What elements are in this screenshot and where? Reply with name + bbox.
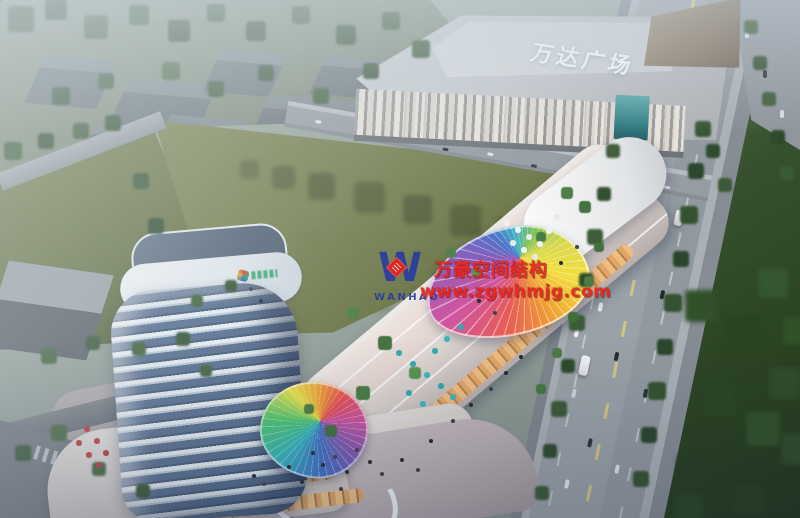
- tower-logo: [237, 267, 278, 281]
- tower-logo-icon: [236, 269, 249, 282]
- mall-building: [341, 0, 749, 178]
- warehouse-building: [0, 261, 114, 361]
- street-cars: [287, 107, 293, 111]
- aerial-rendering-scene: 万达广场: [0, 0, 800, 518]
- watermark-logo-icon: W: [378, 248, 422, 288]
- building-cube: [203, 49, 288, 97]
- watermark: W WANHAO 万豪空间结构 www.zgwhmjg.com: [372, 248, 587, 318]
- mall-entrance-glass: [614, 95, 650, 141]
- watermark-company-text: 万豪空间结构: [434, 256, 548, 282]
- pedestrians: [0, 0, 2, 2]
- watermark-diamond-mark: [392, 263, 402, 273]
- watermark-url-text: www.zgwhmjg.com: [420, 282, 612, 302]
- tower-logo-lettering: [251, 269, 278, 279]
- building-cube: [24, 55, 117, 109]
- construction-area: [641, 0, 745, 73]
